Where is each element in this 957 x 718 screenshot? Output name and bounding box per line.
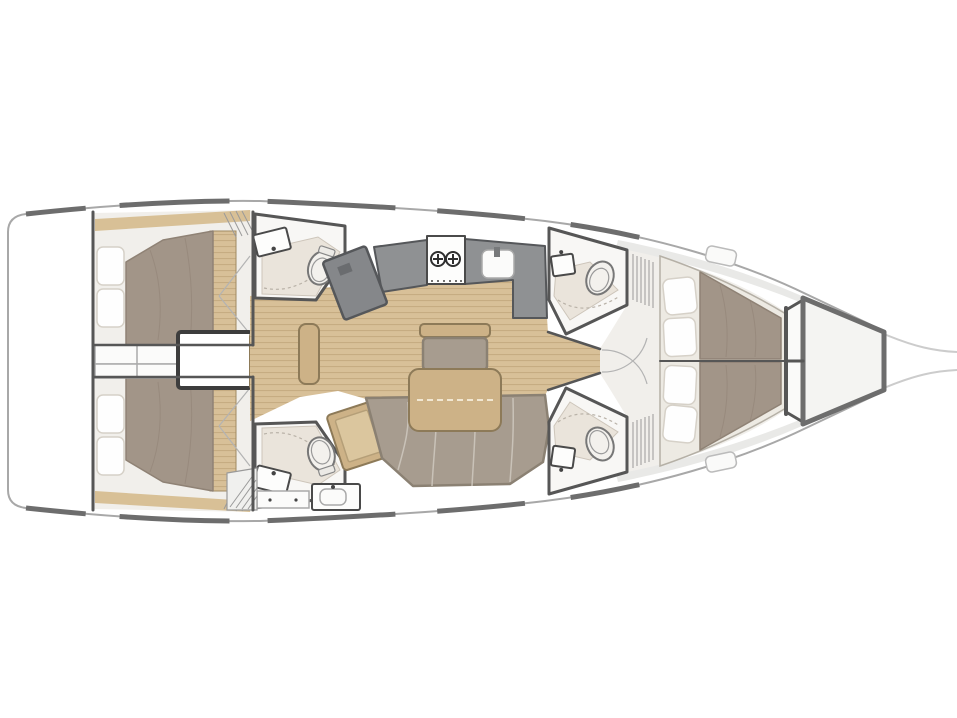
faucet bbox=[331, 485, 335, 489]
stove-burner bbox=[446, 252, 460, 266]
bow bbox=[786, 298, 884, 424]
pillow bbox=[97, 395, 124, 433]
bow-whisker-bottom bbox=[884, 370, 957, 388]
second-sink-basin bbox=[320, 489, 346, 505]
drawer-knob bbox=[294, 498, 297, 501]
stove-burner bbox=[431, 252, 445, 266]
side-wood-seat bbox=[299, 324, 319, 384]
bench-seat-back bbox=[420, 324, 490, 337]
pillow bbox=[97, 289, 124, 327]
pillow bbox=[663, 365, 697, 405]
aft-bed-port-slat-foot bbox=[210, 231, 236, 335]
pillow bbox=[97, 247, 124, 285]
floorplan-svg bbox=[0, 0, 957, 718]
yacht-interior-floorplan bbox=[0, 0, 957, 718]
anchor-locker bbox=[803, 298, 884, 424]
pillow bbox=[662, 404, 698, 443]
pillow bbox=[662, 276, 698, 315]
galley-faucet bbox=[494, 247, 500, 257]
pillow bbox=[663, 317, 697, 357]
drawer-knob bbox=[268, 498, 271, 501]
bench-seat-cushion bbox=[423, 338, 487, 370]
vanity-drawer-unit bbox=[257, 491, 309, 508]
engine-compartment-box bbox=[178, 332, 252, 388]
pillow bbox=[97, 437, 124, 475]
bow-whisker-top bbox=[884, 334, 957, 352]
galley-counter-left bbox=[374, 240, 427, 292]
